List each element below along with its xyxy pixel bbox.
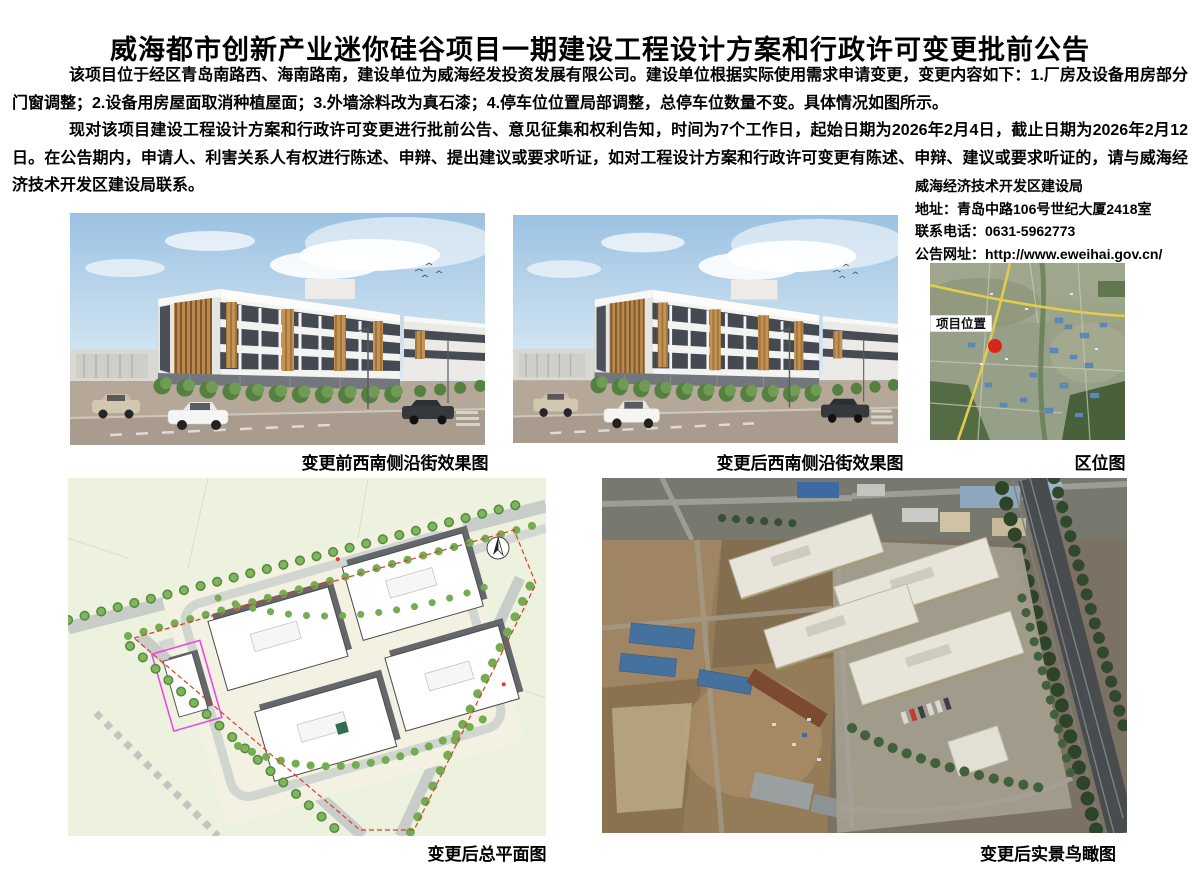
caption-after-render: 变更后西南侧沿街效果图 [710,449,910,474]
after-change-render-image [513,215,898,443]
contact-website: 公告网址：http://www.eweihai.gov.cn/ [915,243,1162,266]
contact-phone: 联系电话：0631-5962773 [915,220,1162,243]
contact-block: 威海经济技术开发区建设局 地址：青岛中路106号世纪大厦2418室 联系电话：0… [915,175,1162,265]
notice-paragraph-1: 该项目位于经区青岛南路西、海南路南，建设单位为威海经发投资发展有限公司。建设单位… [12,62,1188,117]
before-change-render-figure [70,213,485,445]
aerial-photo-image [602,478,1127,833]
location-map-image: 项目位置 [930,263,1125,440]
north-arrow [487,537,509,559]
contact-org: 威海经济技术开发区建设局 [915,175,1162,198]
site-plan-figure [68,478,546,836]
announcement-poster: 威海都市创新产业迷你硅谷项目一期建设工程设计方案和行政许可变更批前公告 该项目位… [0,0,1200,881]
caption-aerial: 变更后实景鸟瞰图 [948,840,1148,865]
location-map-figure: 项目位置 [930,263,1125,440]
site-plan-image [68,478,546,836]
caption-location-map: 区位图 [1050,449,1150,474]
after-change-render-figure [513,215,898,443]
caption-before-render: 变更前西南侧沿街效果图 [295,449,495,474]
project-location-label: 项目位置 [936,316,987,331]
contact-address: 地址：青岛中路106号世纪大厦2418室 [915,198,1162,221]
project-location-marker [988,339,1002,353]
caption-site-plan: 变更后总平面图 [387,840,587,865]
before-change-render-image [70,213,485,445]
aerial-photo-figure [602,478,1127,833]
